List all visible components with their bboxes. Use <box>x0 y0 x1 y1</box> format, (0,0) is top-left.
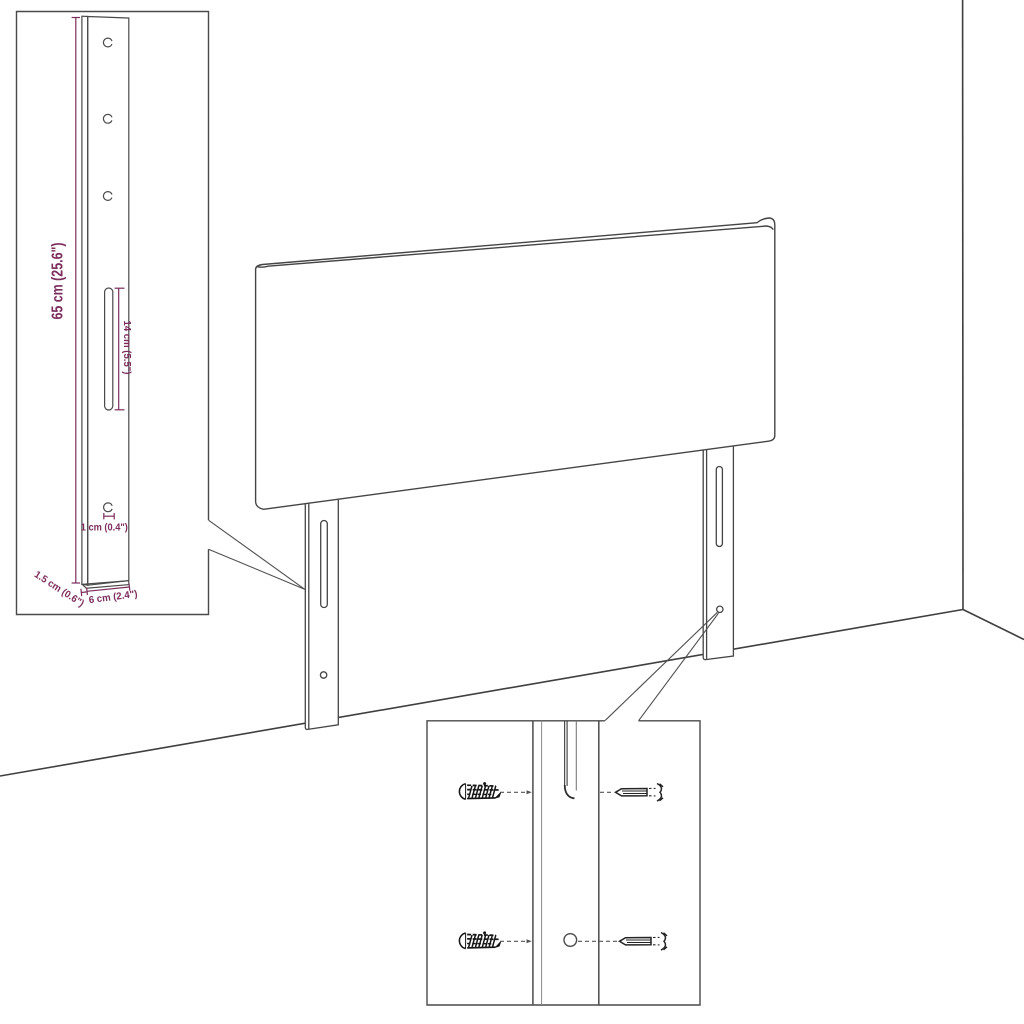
svg-text:1 cm (0.4"): 1 cm (0.4") <box>81 523 128 534</box>
svg-text:14 cm (5.5"): 14 cm (5.5") <box>121 321 132 375</box>
svg-text:65 cm (25.6"): 65 cm (25.6") <box>50 243 67 320</box>
